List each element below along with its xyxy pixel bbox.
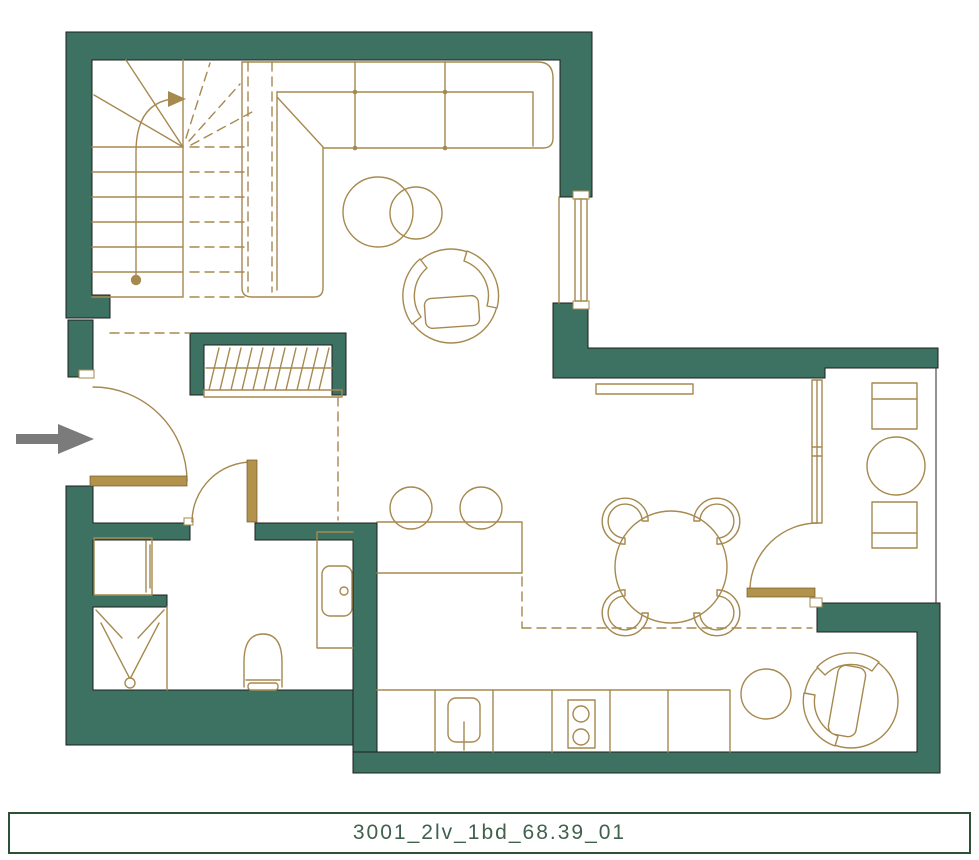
dining-chairs: [593, 489, 750, 646]
vanity-sink: [317, 532, 353, 648]
balcony-chairs: [872, 383, 917, 548]
round-armchair: [403, 249, 499, 343]
shower: [96, 607, 167, 690]
entrance-arrow: [16, 424, 94, 454]
balcony-table: [867, 437, 925, 495]
plan-label-box: 3001_2lv_1bd_68.39_01: [8, 812, 971, 854]
sectional-sofa: [242, 62, 553, 297]
lounge-armchair: [803, 653, 898, 748]
glazed-partition: [812, 380, 822, 523]
washing-machine: [94, 538, 152, 595]
kitchen-sink: [448, 698, 480, 750]
entry-door: [79, 370, 187, 486]
radiator: [596, 384, 693, 394]
window: [559, 191, 589, 309]
walls: [66, 32, 940, 773]
coffee-tables: [343, 177, 442, 247]
balcony-door: [747, 523, 822, 607]
wall-entry-left: [68, 320, 93, 377]
staircase: [92, 60, 272, 297]
wall-wardrobe-niche: [190, 333, 346, 395]
wall-living-right-and-top-right: [553, 303, 938, 378]
stair-direction-arrow: [131, 91, 186, 285]
plan-label: 3001_2lv_1bd_68.39_01: [353, 821, 626, 845]
bathroom-door: [184, 460, 257, 525]
breakfast-bar: [377, 522, 522, 573]
floorplan-drawing: [0, 0, 979, 805]
wardrobe: [204, 348, 342, 397]
wall-top-left: [66, 32, 592, 318]
dining-table: [615, 511, 727, 623]
kitchen-counter: [377, 690, 730, 752]
hob: [568, 700, 595, 748]
floorplan-canvas: 3001_2lv_1bd_68.39_01: [0, 0, 979, 860]
side-table: [741, 669, 791, 719]
toilet: [244, 634, 282, 690]
